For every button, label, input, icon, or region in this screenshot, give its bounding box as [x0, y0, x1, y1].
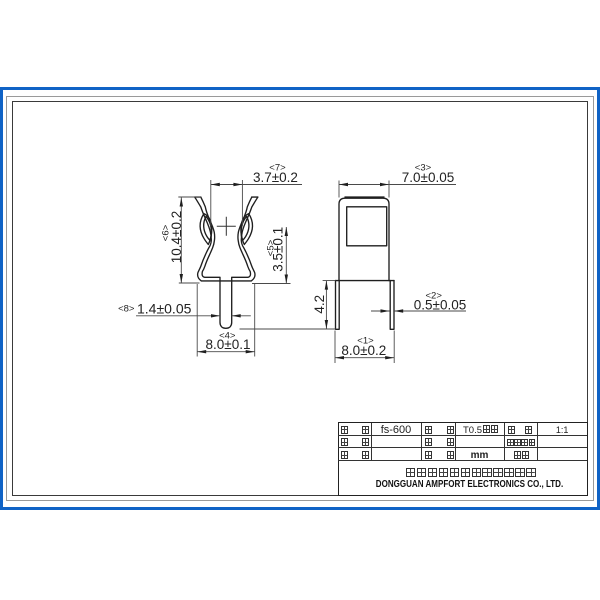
svg-text:4.2: 4.2	[312, 295, 327, 314]
svg-text:8.0±0.2: 8.0±0.2	[341, 343, 386, 358]
svg-text:3.7±0.2: 3.7±0.2	[253, 170, 298, 185]
svg-text:10.4±0.2: 10.4±0.2	[169, 211, 184, 263]
svg-text:8.0±0.1: 8.0±0.1	[206, 337, 251, 352]
svg-text:7.0±0.05: 7.0±0.05	[402, 170, 454, 185]
svg-text:<8>: <8>	[118, 304, 135, 315]
svg-text:0.5±0.05: 0.5±0.05	[414, 298, 466, 313]
svg-text:3.5±0.1: 3.5±0.1	[270, 227, 285, 272]
svg-text:1.4±0.05: 1.4±0.05	[137, 301, 192, 317]
